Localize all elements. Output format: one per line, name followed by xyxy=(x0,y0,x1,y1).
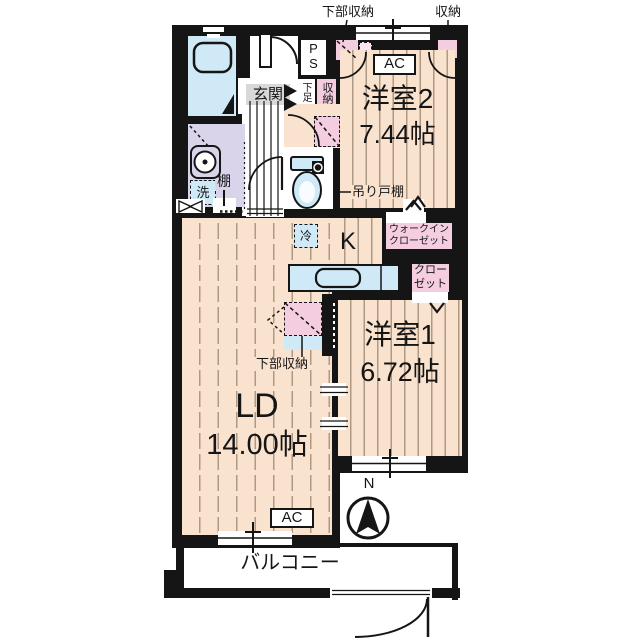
wic-fold-notch xyxy=(403,199,424,212)
label-western1-size: 6.72帖 xyxy=(338,358,462,388)
toilet-room xyxy=(284,147,333,209)
hallway xyxy=(242,100,284,216)
bath-vent-mark xyxy=(203,27,224,32)
western2-top-window xyxy=(356,27,430,40)
ld-lower-storage-counter xyxy=(284,336,322,350)
balcony-opening xyxy=(330,588,432,598)
compass-icon xyxy=(348,498,388,538)
balcony-pillar xyxy=(164,570,184,598)
shelf-box xyxy=(213,198,236,213)
closet-line2: ゼット xyxy=(414,278,447,290)
label-western2-size: 7.44帖 xyxy=(340,120,455,149)
ld-lower-storage-box xyxy=(284,302,322,336)
label-top-lower-storage: 下部収納 xyxy=(306,5,390,19)
label-western1-name: 洋室1 xyxy=(338,320,462,351)
closet-line1: クロー xyxy=(414,264,447,276)
bath-vent-mark2 xyxy=(207,34,220,38)
balcony-rail-right xyxy=(452,543,458,600)
label-hanging-cupboard: 吊り戸棚 xyxy=(350,185,406,199)
ps-text: PS xyxy=(308,42,320,72)
wic-line1: ウォークイン xyxy=(389,224,449,235)
label-balcony: バルコニー xyxy=(200,552,380,574)
wic-door-bar xyxy=(386,212,426,223)
label-top-storage: 収納 xyxy=(427,5,469,19)
hall-ld-sliding-door xyxy=(246,206,284,217)
entry-door-nook xyxy=(250,36,298,80)
label-entrance: 玄関 xyxy=(246,84,290,105)
label-ac-western2: AC xyxy=(373,54,416,74)
label-ld-name: LD xyxy=(182,388,332,425)
western1-window xyxy=(352,456,426,471)
label-kitchen: K xyxy=(334,229,362,255)
hanging-cupboard-box xyxy=(314,116,340,147)
wic-line2: クローゼット xyxy=(389,236,449,247)
label-washer: 洗 xyxy=(190,180,216,205)
ld-window xyxy=(218,531,292,545)
label-closet: クロー ゼット xyxy=(412,264,449,292)
closet-door-bar xyxy=(412,292,448,303)
label-shelf: 棚 xyxy=(215,174,233,189)
floor-plan: 下部収納 収納 PS 玄関 下足 収納 洋室2 7.44帖 AC 吊り戸棚 洗 … xyxy=(0,0,640,640)
label-fridge: 冷 xyxy=(294,224,318,248)
label-north: N xyxy=(358,476,380,493)
label-ld-size: 14.00帖 xyxy=(182,430,332,462)
label-shoe-box: 下足 xyxy=(300,82,310,102)
label-western2-name: 洋室2 xyxy=(340,84,455,115)
label-ac-ld: AC xyxy=(270,508,314,527)
balcony-door-icon xyxy=(355,597,428,637)
label-ps: PS xyxy=(301,42,326,72)
label-ld-lower-storage: 下部収納 xyxy=(254,357,310,371)
balcony-rail-top-right xyxy=(336,543,452,547)
bathroom xyxy=(188,36,236,116)
label-wic: ウォークイン クローゼット xyxy=(386,224,452,248)
kitchen-counter xyxy=(288,264,400,292)
label-hall-storage: 収納 xyxy=(321,82,332,104)
